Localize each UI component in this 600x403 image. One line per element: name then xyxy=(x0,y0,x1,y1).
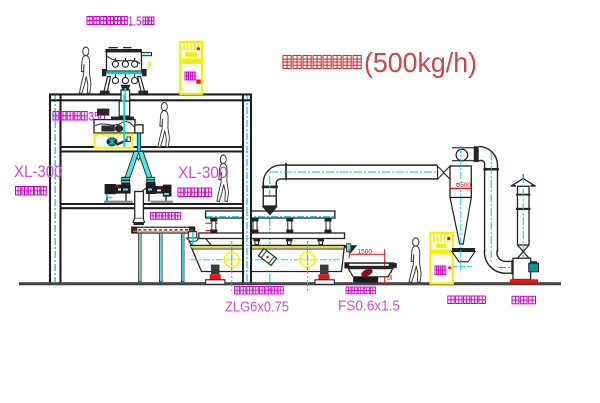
svg-text:(500kg/h): (500kg/h) xyxy=(364,47,477,78)
svg-text:XL-300: XL-300 xyxy=(14,162,63,181)
svg-text:XL-300: XL-300 xyxy=(178,163,228,182)
svg-text:ZLG6x0.75: ZLG6x0.75 xyxy=(225,299,289,316)
svg-text:1.5: 1.5 xyxy=(128,15,142,29)
svg-text:1500: 1500 xyxy=(358,248,373,255)
svg-text:FS0.6x1.5: FS0.6x1.5 xyxy=(338,298,400,315)
